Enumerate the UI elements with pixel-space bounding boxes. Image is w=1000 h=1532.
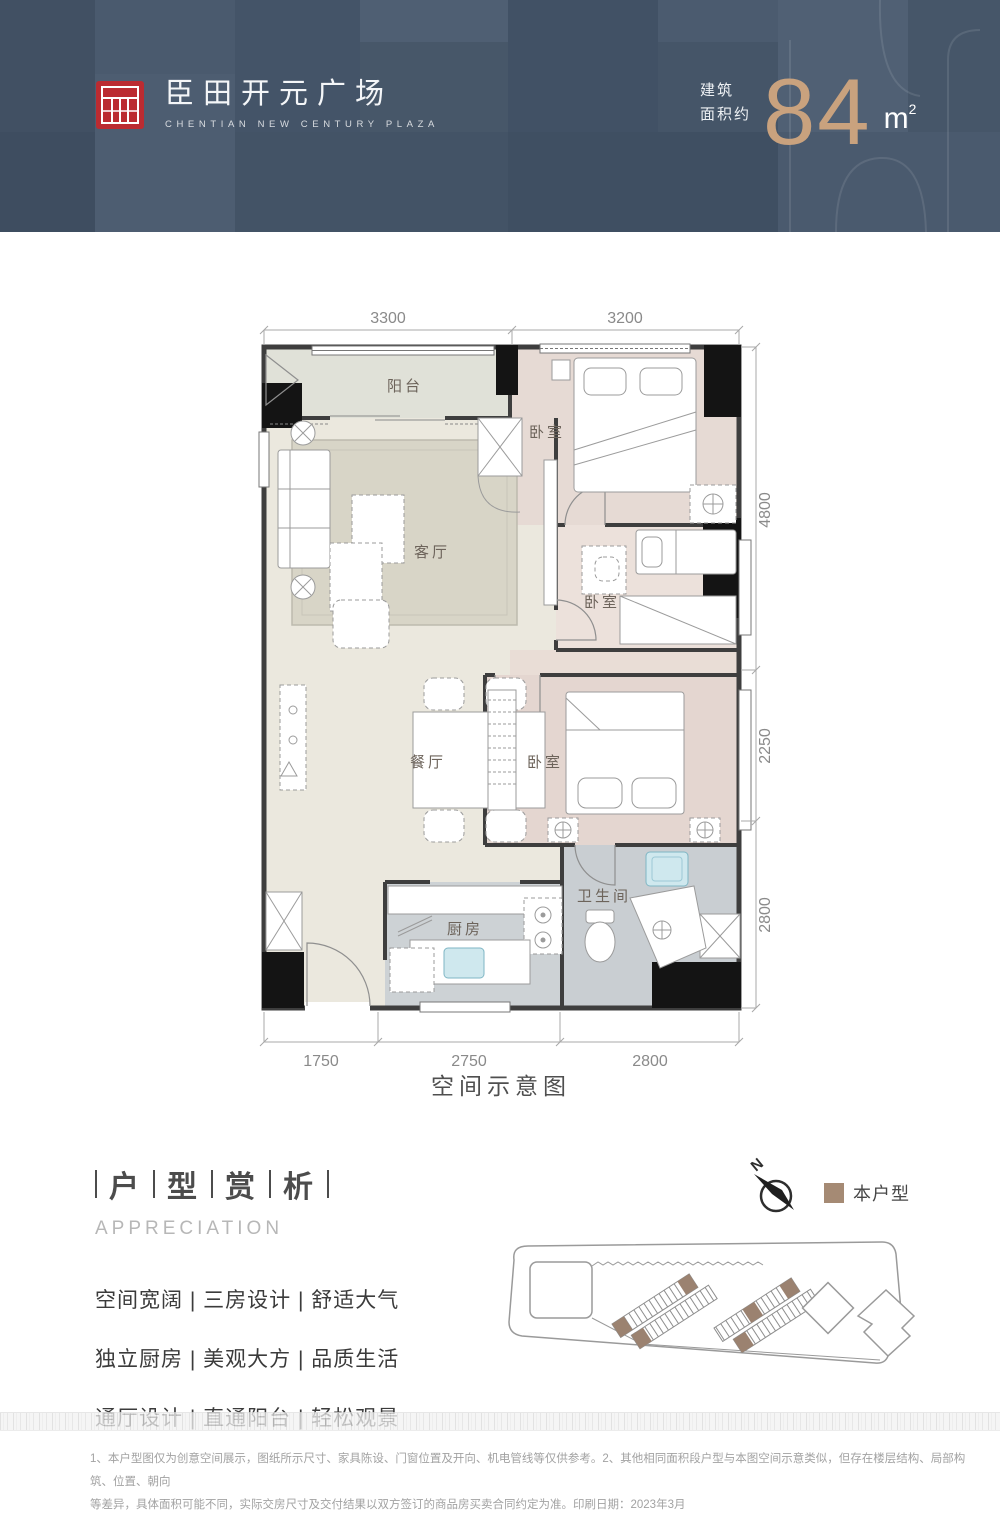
room-label-bedroom-2: 卧室 (584, 594, 620, 611)
compass-n-label: N (748, 1155, 767, 1175)
hall-floor-2 (510, 650, 739, 675)
this-unit-label: 本户型 (853, 1180, 910, 1206)
room-label-bathroom: 卫生间 (577, 888, 631, 905)
dim-right-2: 2250 (757, 728, 774, 764)
dim-right-1: 4800 (757, 492, 774, 528)
brand-name: 臣田开元广场 (165, 80, 439, 109)
area-callout: 建筑 面积约 84 m2 (700, 72, 916, 152)
header-banner: 臣田开元广场 CHENTIAN NEW CENTURY PLAZA 建筑 面积约… (0, 0, 1000, 232)
brand-text: 臣田开元广场 CHENTIAN NEW CENTURY PLAZA (165, 80, 439, 130)
disclaimer: 1、本户型图仅为创意空间展示，图纸所示尺寸、家具陈设、门窗位置及开向、机电管线等… (90, 1448, 970, 1517)
appreciation-subtitle: APPRECIATION (95, 1218, 399, 1240)
dim-top-1: 3300 (370, 310, 406, 327)
site-left-building (530, 1262, 592, 1318)
compass-icon: N (742, 1152, 806, 1222)
legend-row: N 本户型 (742, 1152, 910, 1222)
feature-line: 独立厨房 | 美观大方 | 品质生活 (95, 1343, 399, 1373)
area-label: 建筑 面积约 (700, 79, 751, 126)
legend-this-unit: 本户型 (824, 1180, 910, 1206)
dim-bottom-1: 1750 (303, 1053, 339, 1070)
dim-bottom-2: 2750 (451, 1053, 487, 1070)
disclaimer-line-2: 等差异，具体面积可能不同，实际交房尺寸及交付结果以双方签订的商品房买卖合同约定为… (90, 1494, 970, 1517)
floor-plan: 阳台 客厅 卧室 卧室 卧室 餐厅 厨房 卫生间 3300 3200 4800 … (0, 300, 1000, 1100)
brand-lockup: 臣田开元广场 CHENTIAN NEW CENTURY PLAZA (95, 80, 439, 130)
dim-bottom-3: 2800 (632, 1053, 668, 1070)
room-label-living-room: 客厅 (414, 544, 450, 561)
plan-caption: 空间示意图 (431, 1073, 571, 1099)
dim-right-3: 2800 (757, 897, 774, 933)
room-label-master-bedroom: 卧室 (529, 424, 565, 441)
area-value: 84 (763, 72, 872, 152)
brand-name-en: CHENTIAN NEW CENTURY PLAZA (165, 119, 439, 130)
room-label-balcony: 阳台 (387, 378, 423, 395)
feature-line: 空间宽阔 | 三房设计 | 舒适大气 (95, 1284, 399, 1314)
dim-top-2: 3200 (607, 310, 643, 327)
room-label-kitchen: 厨房 (447, 921, 483, 938)
decorative-strip (0, 1412, 1000, 1431)
room-label-dining-room: 餐厅 (410, 754, 446, 771)
disclaimer-line-1: 1、本户型图仅为创意空间展示，图纸所示尺寸、家具陈设、门窗位置及开向、机电管线等… (90, 1448, 970, 1494)
brand-seal-icon (95, 80, 145, 130)
appreciation-features: 空间宽阔 | 三房设计 | 舒适大气 独立厨房 | 美观大方 | 品质生活 通厅… (95, 1284, 399, 1432)
page: 臣田开元广场 CHENTIAN NEW CENTURY PLAZA 建筑 面积约… (0, 0, 1000, 1532)
area-unit: m2 (884, 102, 917, 134)
site-plan (492, 1232, 932, 1394)
this-unit-swatch (824, 1183, 844, 1203)
entry-opening (305, 1002, 370, 1012)
room-label-bedroom-3: 卧室 (527, 754, 563, 771)
appreciation-title: 户 型 赏 析 (95, 1162, 399, 1206)
